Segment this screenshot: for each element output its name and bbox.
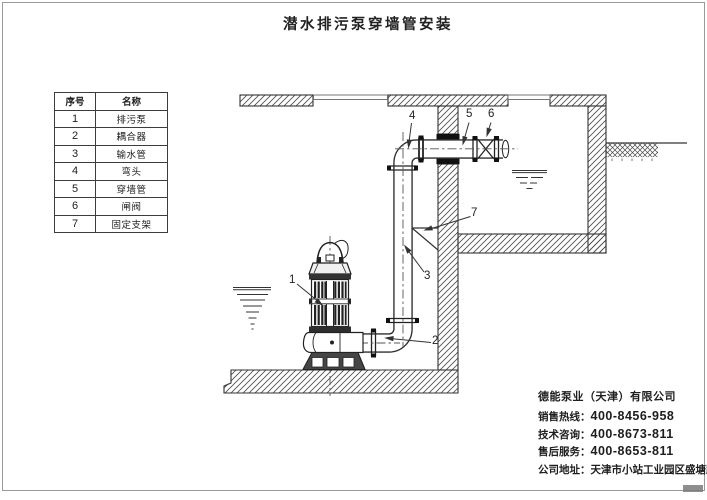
callout-6: 6 <box>488 108 494 121</box>
ceiling-mid <box>388 95 508 106</box>
cable <box>334 240 348 258</box>
seal-chamber <box>309 327 351 333</box>
tank-right-wall <box>588 106 606 253</box>
callout-7: 7 <box>471 207 477 220</box>
ceiling-left <box>240 95 313 106</box>
water-level-pit <box>233 288 271 330</box>
pump-top-cap <box>309 263 351 274</box>
opening-cover-left <box>314 95 388 100</box>
after-sales: 售后服务： 400-8653-811 <box>538 444 703 462</box>
pump-neck <box>309 274 351 280</box>
callout-5: 5 <box>466 108 472 121</box>
tank-bottom <box>458 234 606 253</box>
company-info: 德能泵业（天津）有限公司 销售热线： 400-8456-958 技术咨询： 40… <box>538 388 703 479</box>
callout-2: 2 <box>432 335 438 348</box>
company-name: 德能泵业（天津）有限公司 <box>538 388 703 404</box>
fixing-bracket <box>412 228 438 250</box>
callout-3: 3 <box>424 270 430 283</box>
company-address: 公司地址： 天津市小站工业园区盛塘路9号 <box>538 462 703 480</box>
tech-support: 技术咨询： 400-8673-811 <box>538 427 703 445</box>
leader-arrow-6 <box>487 128 491 135</box>
ground-level <box>606 143 687 161</box>
sales-hotline: 销售热线： 400-8456-958 <box>538 409 703 427</box>
center-wall-lower <box>438 164 458 370</box>
callout-1: 1 <box>289 274 295 287</box>
ceiling-right <box>550 95 606 106</box>
center-wall-upper <box>438 106 458 134</box>
water-level-tank <box>512 171 547 189</box>
pit-floor <box>224 370 458 393</box>
watermark <box>683 485 703 492</box>
submersible-pump <box>303 240 365 369</box>
callout-4: 4 <box>409 110 415 123</box>
drawing-page: 潜水排污泵穿墙管安装 序号 名称 1 排污泵 2 耦合器 3 输水管 4 弯头 … <box>0 0 707 500</box>
opening-cover-right <box>508 95 550 100</box>
